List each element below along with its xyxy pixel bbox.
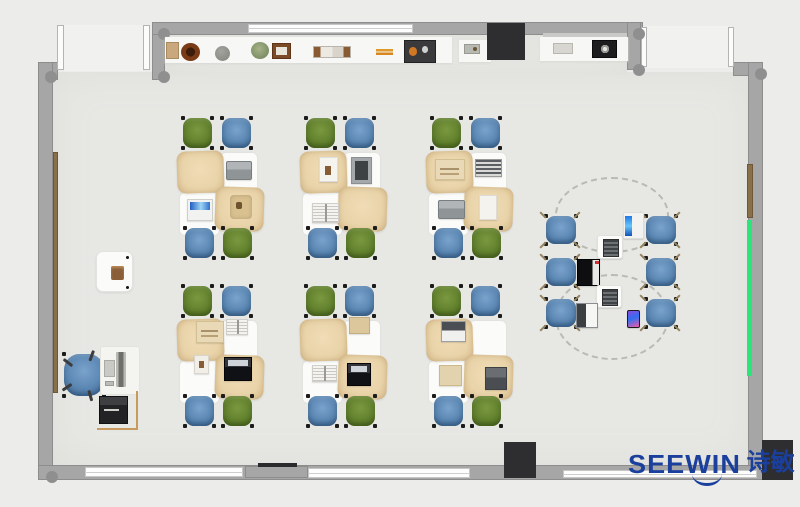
desk-item-notebook-tan bbox=[349, 317, 370, 334]
chair-foot bbox=[333, 284, 337, 288]
chair-blue bbox=[307, 395, 338, 427]
cabinet-edge bbox=[97, 428, 138, 430]
chair-foot bbox=[372, 284, 376, 288]
chair-foot bbox=[432, 394, 436, 398]
chair-foot bbox=[470, 256, 474, 260]
chair-foot bbox=[212, 394, 216, 398]
chair-seat bbox=[472, 396, 501, 426]
wall-beam bbox=[258, 463, 297, 467]
desk-item-laptop-dark bbox=[485, 367, 507, 390]
chair-blue bbox=[184, 227, 215, 259]
desk-item-laptop-blue bbox=[187, 199, 213, 221]
chair-foot bbox=[306, 256, 310, 260]
chair-seat bbox=[185, 228, 214, 258]
desk-item-laptop-white-open bbox=[441, 321, 466, 342]
shelf-item-book-row bbox=[313, 46, 351, 58]
desk-item-book-open bbox=[226, 319, 248, 335]
wall-segment bbox=[38, 62, 53, 480]
desk-item-laptop-gray bbox=[226, 161, 252, 180]
shelf-item-tool-box bbox=[404, 40, 436, 63]
chair-foot bbox=[430, 284, 434, 288]
chair-foot bbox=[470, 394, 474, 398]
chair-foot bbox=[499, 226, 503, 230]
chair-foot bbox=[210, 146, 214, 150]
chair-foot bbox=[220, 284, 224, 288]
desk-item-phone-x bbox=[627, 310, 640, 328]
chair-foot bbox=[333, 146, 337, 150]
chair-foot bbox=[344, 226, 348, 230]
chair-blue bbox=[221, 117, 252, 149]
chair-foot bbox=[181, 314, 185, 318]
chair-foot bbox=[432, 226, 436, 230]
logo-text-en: SEEWIN bbox=[628, 451, 741, 477]
chair-foot bbox=[333, 314, 337, 318]
chair-seat bbox=[432, 286, 461, 316]
door-frame bbox=[143, 25, 150, 70]
chair-seat bbox=[471, 286, 500, 316]
chair-foot bbox=[250, 226, 254, 230]
wall-corner-joint bbox=[46, 471, 58, 483]
chair-foot bbox=[249, 314, 253, 318]
chair-foot bbox=[499, 424, 503, 428]
table-screw bbox=[126, 286, 129, 289]
desk-item-pad-device bbox=[596, 285, 622, 308]
chair-seat bbox=[432, 118, 461, 148]
chair-foot bbox=[432, 256, 436, 260]
chair-blue bbox=[433, 395, 464, 427]
chair-foot bbox=[181, 284, 185, 288]
chair-green bbox=[305, 117, 336, 149]
chair-foot bbox=[459, 116, 463, 120]
chair-foot bbox=[459, 284, 463, 288]
desk-cluster bbox=[429, 283, 507, 429]
chair-seat bbox=[546, 216, 576, 244]
chair-foot bbox=[335, 256, 339, 260]
chair-blue bbox=[645, 215, 677, 245]
chair-foot bbox=[372, 314, 376, 318]
desk-item-satchel-tan bbox=[230, 195, 252, 219]
chair-blue bbox=[344, 117, 375, 149]
desk-cluster bbox=[303, 283, 381, 429]
teacher-tablet bbox=[104, 360, 115, 377]
chair-blue bbox=[221, 285, 252, 317]
chair-seat bbox=[345, 118, 374, 148]
chair-green bbox=[431, 117, 462, 149]
teacher-monitor bbox=[116, 352, 126, 387]
desk-item-book-open bbox=[312, 203, 339, 223]
teacher-keyboard bbox=[105, 381, 114, 386]
cabinet-edge bbox=[136, 391, 138, 430]
chair-foot bbox=[306, 394, 310, 398]
chair-foot bbox=[498, 284, 502, 288]
chair-green bbox=[471, 395, 502, 427]
chair-green bbox=[345, 395, 376, 427]
pillar-column bbox=[487, 23, 525, 60]
chair-green bbox=[182, 117, 213, 149]
shelf-item-gray-sphere bbox=[215, 46, 230, 61]
chair-foot bbox=[306, 226, 310, 230]
floorplan-canvas: SEEWIN 诗敏 bbox=[0, 0, 800, 507]
chair-foot bbox=[250, 394, 254, 398]
chair-foot bbox=[469, 284, 473, 288]
chair-blue bbox=[545, 215, 577, 245]
chair-seat bbox=[308, 228, 337, 258]
desk-item-book-open-tan bbox=[196, 321, 224, 343]
chair-foot bbox=[221, 424, 225, 428]
chair-blue bbox=[184, 395, 215, 427]
chair-foot bbox=[183, 226, 187, 230]
desk-item-tablet-dark bbox=[351, 157, 372, 184]
chair-foot bbox=[221, 394, 225, 398]
chair-foot bbox=[249, 116, 253, 120]
chair-seat bbox=[222, 286, 251, 316]
chair-seat bbox=[434, 228, 463, 258]
chair-foot bbox=[335, 226, 339, 230]
chair-foot bbox=[469, 116, 473, 120]
door-opening bbox=[647, 26, 728, 68]
chair-foot bbox=[343, 146, 347, 150]
chair-seat bbox=[183, 286, 212, 316]
chair-foot bbox=[249, 146, 253, 150]
chair-foot bbox=[250, 424, 254, 428]
chair-seat bbox=[472, 228, 501, 258]
desk-item-book-open bbox=[312, 365, 337, 382]
chair-foot bbox=[461, 256, 465, 260]
side-table-item bbox=[111, 266, 124, 280]
wall-corner-joint bbox=[633, 28, 645, 40]
chair-seat bbox=[64, 354, 104, 396]
chair-foot bbox=[183, 394, 187, 398]
chair-foot bbox=[249, 284, 253, 288]
shelf-item-dark-bowl bbox=[181, 43, 200, 61]
chair-foot bbox=[304, 284, 308, 288]
chair-blue bbox=[645, 257, 677, 287]
chair-seat bbox=[471, 118, 500, 148]
chair-foot bbox=[221, 256, 225, 260]
desk-item-photo-small bbox=[194, 355, 209, 374]
chair-foot bbox=[343, 284, 347, 288]
chair-blue bbox=[470, 117, 501, 149]
chair-foot bbox=[461, 394, 465, 398]
chair-blue bbox=[344, 285, 375, 317]
chair-foot bbox=[373, 226, 377, 230]
chair-foot bbox=[430, 314, 434, 318]
chair-foot bbox=[459, 314, 463, 318]
chair-foot bbox=[220, 116, 224, 120]
window-band bbox=[308, 468, 470, 478]
chair-green bbox=[471, 227, 502, 259]
wall-corner-joint bbox=[45, 71, 57, 83]
chair-foot bbox=[499, 256, 503, 260]
chair-seat bbox=[646, 216, 676, 244]
shelf-item-picture-frame bbox=[272, 43, 291, 59]
chair-foot bbox=[470, 424, 474, 428]
desk-item-laptop-white2 bbox=[576, 303, 598, 328]
desk-item-book-open-tan bbox=[435, 159, 465, 180]
door-opening bbox=[64, 25, 143, 71]
wallboard-brown-right bbox=[747, 164, 753, 218]
desk-item-laptop-gray bbox=[438, 200, 465, 219]
chair-foot bbox=[470, 226, 474, 230]
wall-corner-joint bbox=[633, 64, 645, 76]
desk-item-paper-tan bbox=[439, 365, 462, 386]
chair-foot bbox=[459, 146, 463, 150]
chair-foot bbox=[220, 314, 224, 318]
chair-blue bbox=[545, 298, 577, 328]
chair-green bbox=[182, 285, 213, 317]
chair-blue bbox=[433, 227, 464, 259]
logo-swoosh-icon bbox=[692, 474, 722, 486]
printer bbox=[99, 396, 128, 424]
chair-seat bbox=[346, 228, 375, 258]
chair-foot bbox=[306, 424, 310, 428]
desk-tan bbox=[299, 318, 347, 362]
chair-foot bbox=[335, 394, 339, 398]
chair-foot bbox=[373, 394, 377, 398]
chair-blue bbox=[645, 298, 677, 328]
chair-foot bbox=[469, 314, 473, 318]
shelf-item-potted-plant bbox=[251, 42, 269, 59]
chair-foot bbox=[498, 116, 502, 120]
chair-foot bbox=[304, 146, 308, 150]
chair-foot bbox=[499, 394, 503, 398]
chair-seat bbox=[306, 118, 335, 148]
wallboard-brown-left bbox=[53, 152, 58, 393]
chair-foot bbox=[62, 394, 66, 398]
shelf-item-small-gadget bbox=[464, 44, 480, 54]
chair-seat bbox=[222, 118, 251, 148]
chair-green bbox=[345, 227, 376, 259]
window-band bbox=[85, 467, 243, 477]
desk-tan bbox=[176, 150, 224, 194]
window-band bbox=[248, 24, 413, 33]
chair-foot bbox=[372, 116, 376, 120]
desk-item-pad-phone-blue bbox=[623, 212, 644, 239]
desk-item-book-striped bbox=[475, 159, 502, 177]
chair-foot bbox=[212, 226, 216, 230]
chair-foot bbox=[304, 314, 308, 318]
door-frame bbox=[728, 27, 734, 67]
chair-foot bbox=[432, 424, 436, 428]
chair-seat bbox=[345, 286, 374, 316]
chair-foot bbox=[372, 146, 376, 150]
chair-foot bbox=[210, 116, 214, 120]
chair-foot bbox=[461, 424, 465, 428]
chair-foot bbox=[183, 256, 187, 260]
chair-blue bbox=[63, 353, 105, 397]
shelf-item-pencil-pair bbox=[376, 49, 393, 55]
chair-foot bbox=[62, 352, 66, 356]
pillar-column bbox=[504, 442, 536, 478]
chair-blue bbox=[307, 227, 338, 259]
chair-foot bbox=[469, 146, 473, 150]
chair-seat bbox=[346, 396, 375, 426]
wallboard-green-right bbox=[747, 220, 752, 376]
desk-tan bbox=[337, 186, 388, 232]
chair-seat bbox=[185, 396, 214, 426]
desk-cluster bbox=[180, 283, 258, 429]
desk-item-paper-white bbox=[479, 195, 497, 220]
chair-green bbox=[305, 285, 336, 317]
wall-segment bbox=[245, 466, 308, 478]
chair-foot bbox=[304, 116, 308, 120]
chair-foot bbox=[373, 256, 377, 260]
desk-cluster bbox=[429, 115, 507, 261]
chair-seat bbox=[223, 396, 252, 426]
shelf-item-kettle-unit bbox=[592, 40, 617, 58]
chair-foot bbox=[343, 116, 347, 120]
logo-text-cn: 诗敏 bbox=[747, 451, 795, 475]
shelf-item-light-box bbox=[553, 43, 573, 54]
chair-seat bbox=[646, 299, 676, 327]
chair-foot bbox=[212, 424, 216, 428]
wall-corner-joint bbox=[755, 68, 767, 80]
chair-seat bbox=[546, 299, 576, 327]
chair-seat bbox=[306, 286, 335, 316]
chair-seat bbox=[434, 396, 463, 426]
chair-foot bbox=[250, 256, 254, 260]
chair-foot bbox=[220, 146, 224, 150]
chair-seat bbox=[223, 228, 252, 258]
chair-foot bbox=[343, 314, 347, 318]
desk-item-laptop-black2 bbox=[577, 259, 600, 286]
chair-foot bbox=[461, 226, 465, 230]
chair-seat bbox=[183, 118, 212, 148]
brand-logo: SEEWIN 诗敏 bbox=[628, 451, 795, 477]
chair-foot bbox=[210, 284, 214, 288]
desk-item-laptop-black-open bbox=[224, 357, 252, 381]
chair-blue bbox=[545, 257, 577, 287]
chair-foot bbox=[498, 146, 502, 150]
chair-foot bbox=[333, 116, 337, 120]
chair-foot bbox=[181, 116, 185, 120]
chair-foot bbox=[344, 424, 348, 428]
chair-foot bbox=[344, 394, 348, 398]
shelf-item-storage-box bbox=[166, 42, 179, 59]
chair-foot bbox=[430, 116, 434, 120]
chair-blue bbox=[470, 285, 501, 317]
table-screw bbox=[126, 256, 129, 259]
chair-foot bbox=[344, 256, 348, 260]
chair-foot bbox=[373, 424, 377, 428]
chair-foot bbox=[183, 424, 187, 428]
chair-seat bbox=[646, 258, 676, 286]
chair-foot bbox=[221, 226, 225, 230]
chair-foot bbox=[498, 314, 502, 318]
desk-item-laptop-black-open bbox=[347, 363, 371, 386]
desk-item-pad-device bbox=[597, 235, 623, 259]
wall-corner-joint bbox=[158, 71, 170, 83]
chair-seat bbox=[308, 396, 337, 426]
chair-foot bbox=[212, 256, 216, 260]
chair-foot bbox=[210, 314, 214, 318]
chair-foot bbox=[335, 424, 339, 428]
chair-foot bbox=[181, 146, 185, 150]
desk-cluster bbox=[303, 115, 381, 261]
chair-seat bbox=[546, 258, 576, 286]
chair-green bbox=[222, 227, 253, 259]
chair-green bbox=[431, 285, 462, 317]
desk-item-paper-photo bbox=[319, 157, 338, 182]
desk-cluster bbox=[180, 115, 258, 261]
chair-foot bbox=[430, 146, 434, 150]
door-frame bbox=[57, 25, 64, 70]
chair-green bbox=[222, 395, 253, 427]
